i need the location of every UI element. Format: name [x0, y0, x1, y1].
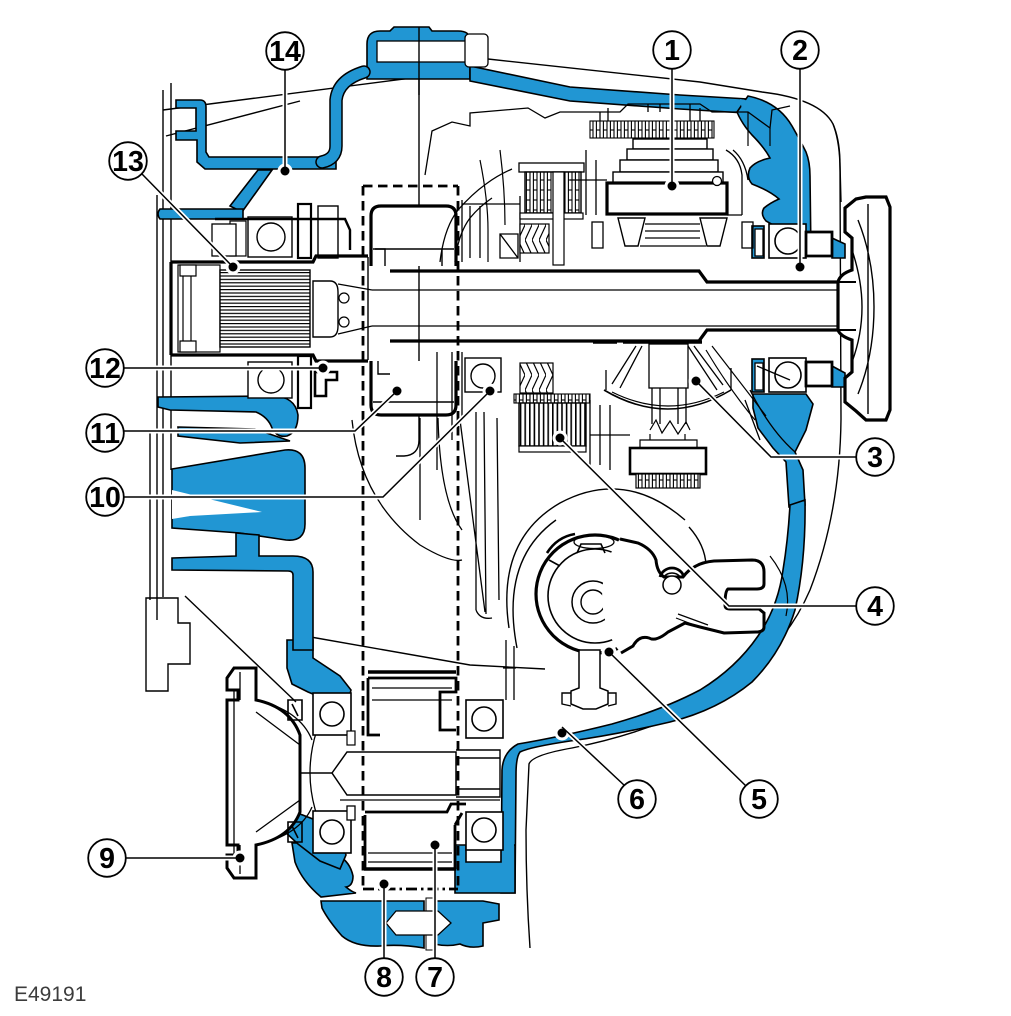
- svg-text:3: 3: [867, 442, 883, 474]
- svg-text:9: 9: [99, 843, 115, 875]
- svg-text:2: 2: [792, 35, 808, 67]
- svg-text:12: 12: [89, 353, 121, 385]
- svg-text:E49191: E49191: [14, 983, 86, 1006]
- svg-text:13: 13: [112, 146, 144, 178]
- svg-text:5: 5: [751, 784, 767, 816]
- svg-text:6: 6: [629, 784, 645, 816]
- svg-text:7: 7: [427, 962, 443, 994]
- svg-text:14: 14: [269, 36, 301, 68]
- svg-text:1: 1: [664, 35, 680, 67]
- svg-text:11: 11: [90, 418, 120, 450]
- svg-text:4: 4: [867, 591, 883, 623]
- svg-text:8: 8: [376, 962, 392, 994]
- svg-text:10: 10: [89, 482, 121, 514]
